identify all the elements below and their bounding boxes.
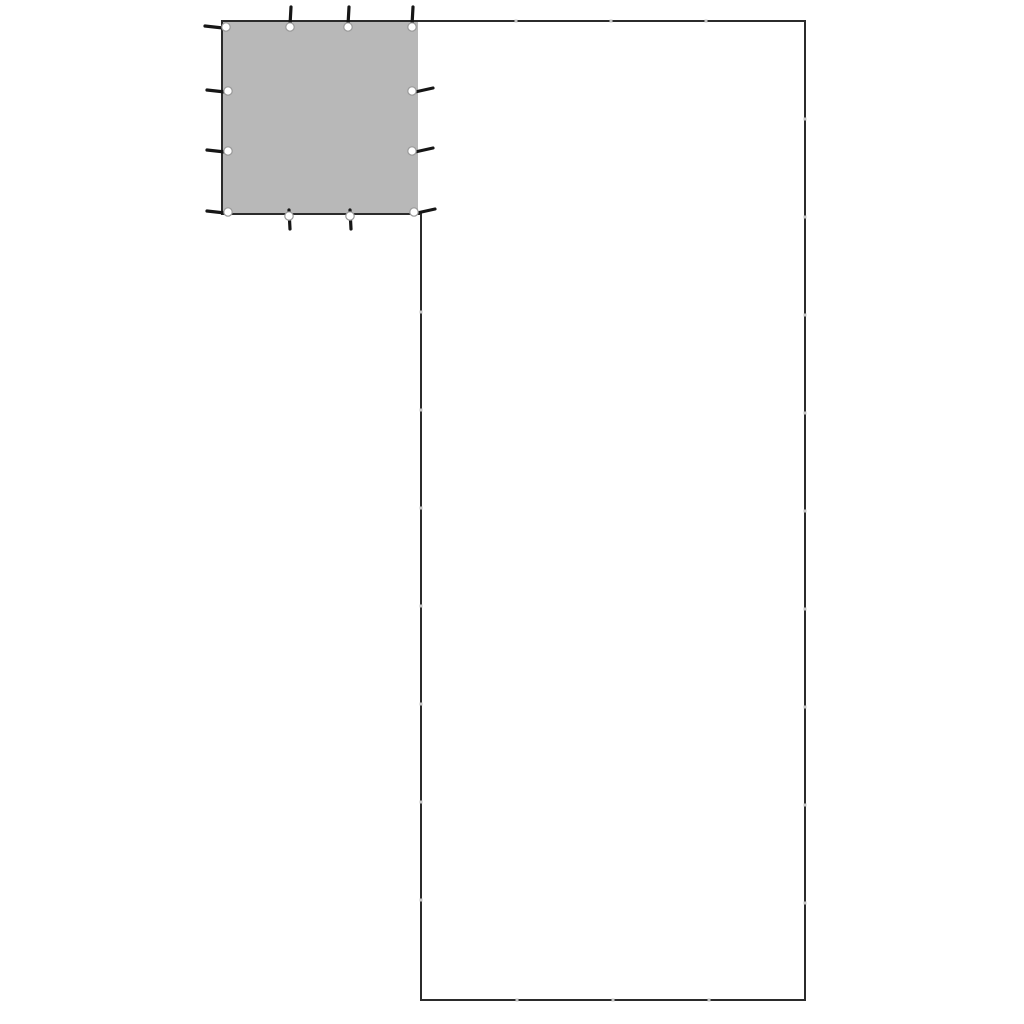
eyelet-hole (224, 87, 232, 95)
tarp-panel (222, 21, 418, 214)
eyelet-hook-icon (207, 90, 225, 92)
eyelet-hole (408, 23, 416, 31)
segment-joint-mark (420, 409, 423, 412)
eyelet-hole (222, 23, 230, 31)
segment-joint-mark (804, 902, 807, 905)
segment-joint-mark (804, 804, 807, 807)
tarp-layout-diagram (0, 0, 1024, 1024)
eyelet-hook-icon (207, 150, 225, 152)
eyelet-hole (344, 23, 352, 31)
canvas-background (0, 0, 1024, 1024)
eyelet-hole (408, 87, 416, 95)
segment-joint-mark (515, 20, 518, 23)
segment-joint-mark (420, 801, 423, 804)
segment-joint-mark (420, 605, 423, 608)
eyelet-hook-icon (205, 26, 223, 28)
diagram-stage (0, 0, 1024, 1024)
eyelet-hole (410, 208, 418, 216)
segment-joint-mark (804, 706, 807, 709)
segment-joint-mark (804, 314, 807, 317)
eyelet-hole (408, 147, 416, 155)
segment-joint-mark (804, 510, 807, 513)
segment-joint-mark (804, 412, 807, 415)
segment-joint-mark (420, 507, 423, 510)
eyelet-hole (285, 212, 293, 220)
segment-joint-mark (516, 999, 519, 1002)
eyelet-hole (346, 212, 354, 220)
segment-joint-mark (420, 703, 423, 706)
segment-joint-mark (705, 20, 708, 23)
eyelet-hole (224, 208, 232, 216)
segment-joint-mark (610, 20, 613, 23)
eyelet-hole (224, 147, 232, 155)
segment-joint-mark (804, 216, 807, 219)
eyelet-hook-icon (207, 211, 225, 213)
segment-joint-mark (708, 999, 711, 1002)
segment-joint-mark (420, 899, 423, 902)
segment-joint-mark (804, 608, 807, 611)
eyelet-hole (286, 23, 294, 31)
segment-joint-mark (804, 118, 807, 121)
segment-joint-mark (612, 999, 615, 1002)
segment-joint-mark (420, 311, 423, 314)
